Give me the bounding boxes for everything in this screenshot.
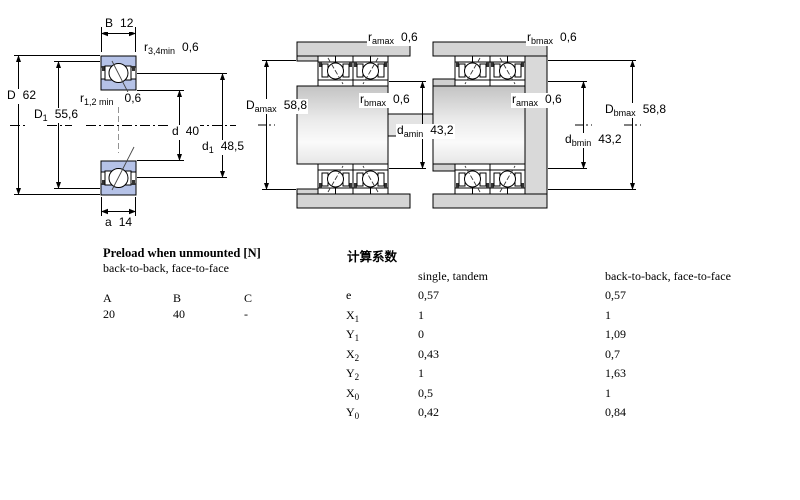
factor-value-single: 0,5 [418,386,605,406]
preload-table-title: Preload when unmounted [N] [103,246,261,261]
housing-bottom [297,194,410,208]
dim-label-a: a14 [104,216,133,231]
factor-value-single: 0 [418,327,605,347]
factor-value-btb: 0,84 [605,405,775,425]
dim-label-ramax-pair-b: ramax0,6 [511,93,563,108]
preload-val-b: 40 [173,307,244,323]
factor-value-btb: 0,7 [605,347,775,367]
factor-value-btb: 1 [605,386,775,406]
dim-label-rbmax-pair-a: rbmax0,6 [359,93,411,108]
factor-value-single: 0,42 [418,405,605,425]
housing-shoulder-bottom [297,189,318,194]
factor-value-single: 0,43 [418,347,605,367]
factors-header-single-tandem: single, tandem [418,269,488,284]
dim-label-dbmin: dbmin43,2 [564,133,623,148]
dim-label-d1: d148,5 [201,140,245,155]
factor-row-label: Y1 [346,327,418,347]
pair-b-dimensions [548,60,641,190]
factor-row-label: X1 [346,308,418,328]
factors-table: e 0,57 0,57 X1 1 1 Y1 0 1,09 X2 0,43 0,7… [346,288,775,425]
preload-table: A B C 20 40 - [103,291,304,322]
dim-label-D1: D155,6 [33,108,79,123]
preload-val-c: - [244,307,304,323]
dim-label-Damax: Damax58,8 [245,99,308,114]
factor-row-label: e [346,288,418,308]
bearing-datasheet-page: B12 r3,4min0,6 r1,2 min0,6 D62 D155,6 d4… [0,0,800,500]
dim-label-r34min: r3,4min0,6 [143,41,200,56]
factor-row-label: Y2 [346,366,418,386]
factor-value-single: 1 [418,366,605,386]
factor-value-single: 0,57 [418,288,605,308]
factor-row-label: X0 [346,386,418,406]
dim-label-rbmax-pair-b: rbmax0,6 [526,31,578,46]
housing-bottom [433,194,547,208]
dim-label-B: B12 [104,17,134,32]
factor-value-single: 1 [418,308,605,328]
dim-label-r12min: r1,2 min0,6 [79,92,142,107]
factor-value-btb: 0,57 [605,288,775,308]
factors-table-title: 计算系数 [347,246,397,265]
dim-label-ramax-pair-a: ramax0,6 [367,31,419,46]
preload-table-subtitle: back-to-back, face-to-face [103,261,229,276]
factor-row-label: Y0 [346,405,418,425]
housing-side-shoulder [525,56,547,194]
preload-col-a: A [103,291,173,307]
preload-col-b: B [173,291,244,307]
dim-label-D: D62 [6,89,37,104]
housing-shoulder-top [297,56,318,61]
dim-label-damin: damin43,2 [396,124,455,139]
factors-header-back-to-back: back-to-back, face-to-face [605,269,731,284]
dim-label-d: d40 [171,125,200,140]
factor-value-btb: 1 [605,308,775,328]
factor-value-btb: 1,09 [605,327,775,347]
factor-row-label: X2 [346,347,418,367]
single-bearing-cross-section [10,56,236,195]
dim-label-Dbmax: Dbmax58,8 [604,103,667,118]
factor-value-btb: 1,63 [605,366,775,386]
preload-val-a: 20 [103,307,173,323]
preload-col-c: C [244,291,304,307]
